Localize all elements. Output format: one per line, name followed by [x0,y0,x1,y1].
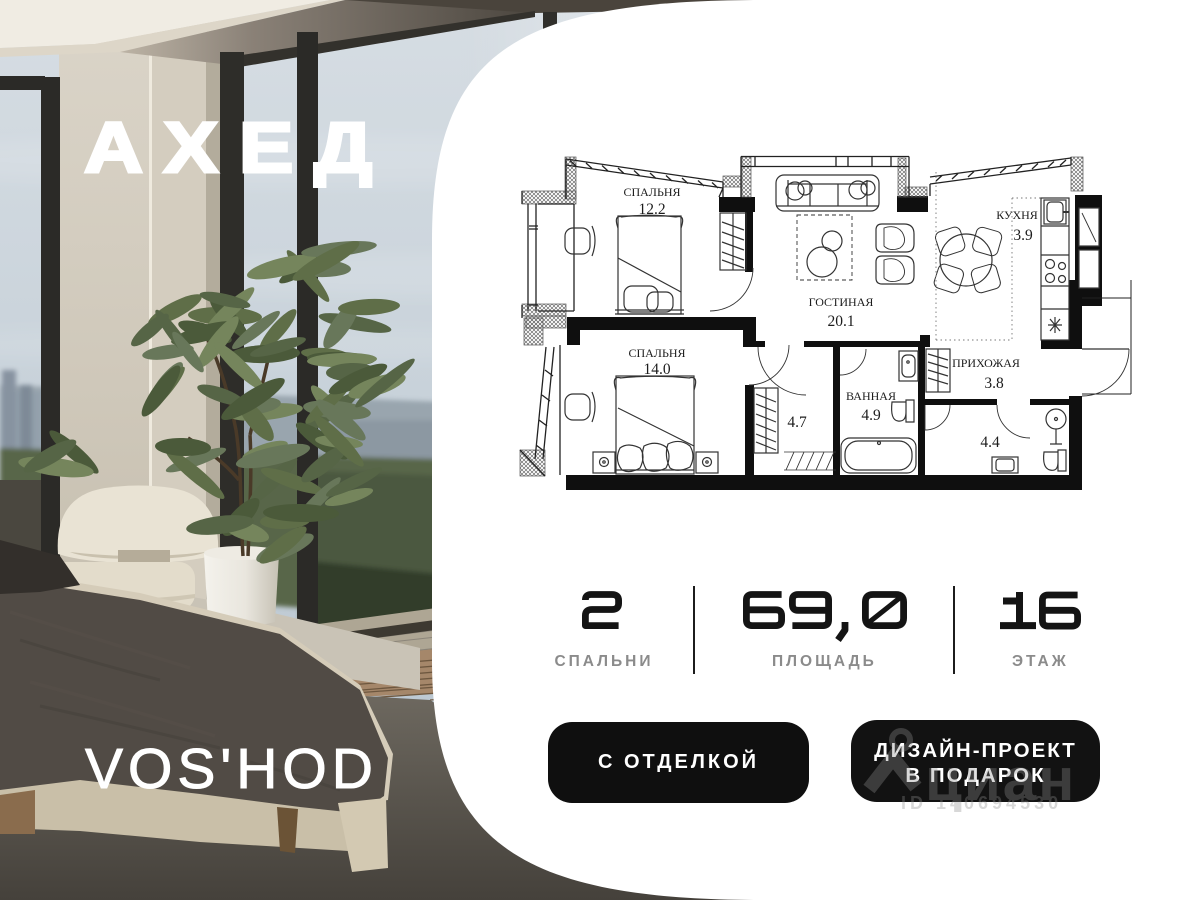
svg-text:ID 140694530: ID 140694530 [901,793,1062,813]
